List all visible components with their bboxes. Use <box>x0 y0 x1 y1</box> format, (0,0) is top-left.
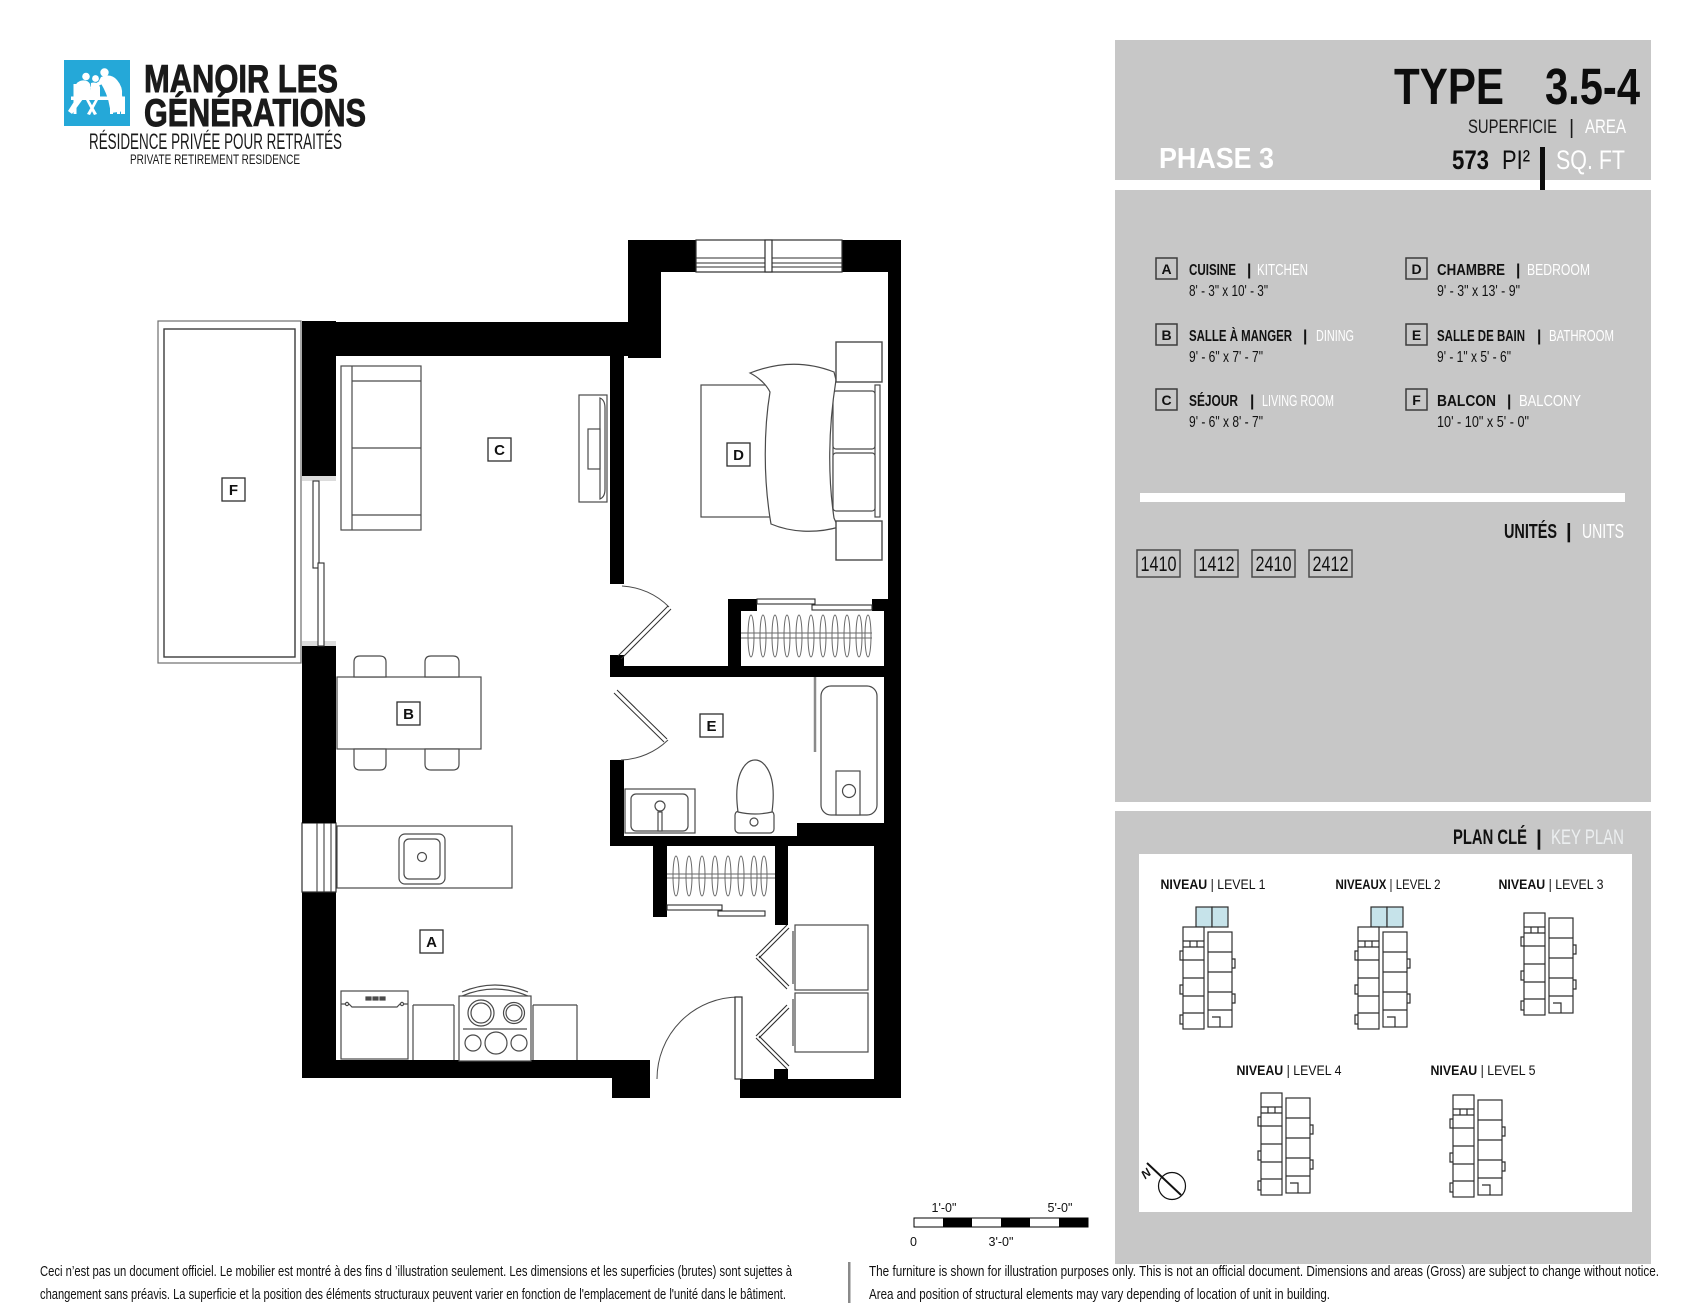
svg-text:BATHROOM: BATHROOM <box>1549 328 1614 345</box>
svg-text:3.5-4: 3.5-4 <box>1545 58 1641 115</box>
svg-text:1'-0": 1'-0" <box>932 1201 957 1215</box>
svg-text:9' - 3" x 13' - 9": 9' - 3" x 13' - 9" <box>1437 283 1520 300</box>
svg-text:A: A <box>426 934 437 951</box>
svg-text:B: B <box>403 706 414 723</box>
svg-text:573: 573 <box>1452 145 1489 175</box>
svg-text:9' - 6" x 8' - 7": 9' - 6" x 8' - 7" <box>1189 414 1263 431</box>
svg-text:AREA: AREA <box>1585 117 1626 138</box>
svg-text:SALLE À MANGER: SALLE À MANGER <box>1189 328 1292 345</box>
svg-text:9' - 6" x 7' - 7": 9' - 6" x 7' - 7" <box>1189 349 1263 366</box>
svg-text:SALLE DE BAIN: SALLE DE BAIN <box>1437 328 1525 345</box>
svg-text:|: | <box>1247 262 1251 279</box>
svg-text:NIVEAU | LEVEL 3: NIVEAU | LEVEL 3 <box>1499 876 1604 892</box>
svg-text:PRIVATE RETIREMENT RESIDENCE: PRIVATE RETIREMENT RESIDENCE <box>130 151 300 167</box>
svg-text:KEY PLAN: KEY PLAN <box>1551 826 1624 849</box>
svg-text:|: | <box>1569 117 1574 139</box>
svg-text:BALCONY: BALCONY <box>1519 393 1581 410</box>
svg-text:The furniture is shown for ill: The furniture is shown for illustration … <box>869 1263 1659 1280</box>
svg-text:NIVEAU | LEVEL 5: NIVEAU | LEVEL 5 <box>1431 1062 1536 1078</box>
svg-text:C: C <box>1161 392 1171 408</box>
svg-text:B: B <box>1161 327 1171 343</box>
svg-text:changement sans préavis. La su: changement sans préavis. La superficie e… <box>40 1286 786 1303</box>
svg-text:DINING: DINING <box>1316 328 1354 345</box>
svg-text:|: | <box>1507 393 1511 410</box>
svg-text:Ceci n’est pas un document off: Ceci n’est pas un document officiel. Le … <box>40 1263 792 1280</box>
svg-text:NIVEAUX | LEVEL 2: NIVEAUX | LEVEL 2 <box>1336 876 1441 892</box>
svg-text:CHAMBRE: CHAMBRE <box>1437 262 1505 279</box>
svg-text:8' - 3" x 10' - 3": 8' - 3" x 10' - 3" <box>1189 283 1268 300</box>
svg-text:0: 0 <box>910 1235 917 1249</box>
svg-text:2412: 2412 <box>1313 553 1349 576</box>
svg-text:F: F <box>1412 392 1421 408</box>
svg-text:1410: 1410 <box>1141 553 1177 576</box>
svg-text:PHASE 3: PHASE 3 <box>1159 143 1274 175</box>
svg-text:NIVEAU | LEVEL 4: NIVEAU | LEVEL 4 <box>1237 1062 1342 1078</box>
svg-text:A: A <box>1161 261 1171 277</box>
svg-text:9' - 1" x 5' - 6": 9' - 1" x 5' - 6" <box>1437 349 1511 366</box>
svg-text:|: | <box>1303 328 1307 345</box>
svg-text:2410: 2410 <box>1256 553 1292 576</box>
svg-text:3'-0": 3'-0" <box>989 1235 1014 1249</box>
svg-text:|: | <box>1250 393 1254 410</box>
svg-text:PI²: PI² <box>1502 145 1530 175</box>
svg-text:TYPE: TYPE <box>1394 58 1504 115</box>
svg-text:KITCHEN: KITCHEN <box>1257 262 1308 279</box>
svg-text:CUISINE: CUISINE <box>1189 262 1236 279</box>
svg-text:10' - 10" x 5' - 0": 10' - 10" x 5' - 0" <box>1437 414 1529 431</box>
svg-text:SÉJOUR: SÉJOUR <box>1189 393 1238 410</box>
svg-text:SUPERFICIE: SUPERFICIE <box>1468 117 1557 138</box>
svg-text:NIVEAU | LEVEL 1: NIVEAU | LEVEL 1 <box>1161 876 1266 892</box>
svg-text:UNITÉS: UNITÉS <box>1504 520 1557 543</box>
svg-text:D: D <box>733 447 744 464</box>
svg-text:PLAN CLÉ: PLAN CLÉ <box>1453 826 1527 849</box>
svg-text:F: F <box>229 482 238 499</box>
svg-text:|: | <box>1536 827 1542 850</box>
svg-text:D: D <box>1411 261 1421 277</box>
svg-text:BEDROOM: BEDROOM <box>1527 262 1590 279</box>
svg-text:C: C <box>494 442 505 459</box>
svg-text:E: E <box>1412 327 1421 343</box>
svg-text:UNITS: UNITS <box>1582 521 1624 543</box>
svg-text:|: | <box>1537 328 1541 345</box>
svg-text:LIVING ROOM: LIVING ROOM <box>1262 393 1334 410</box>
svg-text:BALCON: BALCON <box>1437 393 1496 410</box>
svg-text:SQ. FT: SQ. FT <box>1556 145 1625 175</box>
svg-text:Area and position of structura: Area and position of structural elements… <box>869 1286 1330 1303</box>
svg-text:E: E <box>706 718 716 735</box>
svg-text:5'-0": 5'-0" <box>1048 1201 1073 1215</box>
svg-text:|: | <box>1516 262 1520 279</box>
svg-text:1412: 1412 <box>1199 553 1235 576</box>
svg-text:|: | <box>1566 521 1572 543</box>
